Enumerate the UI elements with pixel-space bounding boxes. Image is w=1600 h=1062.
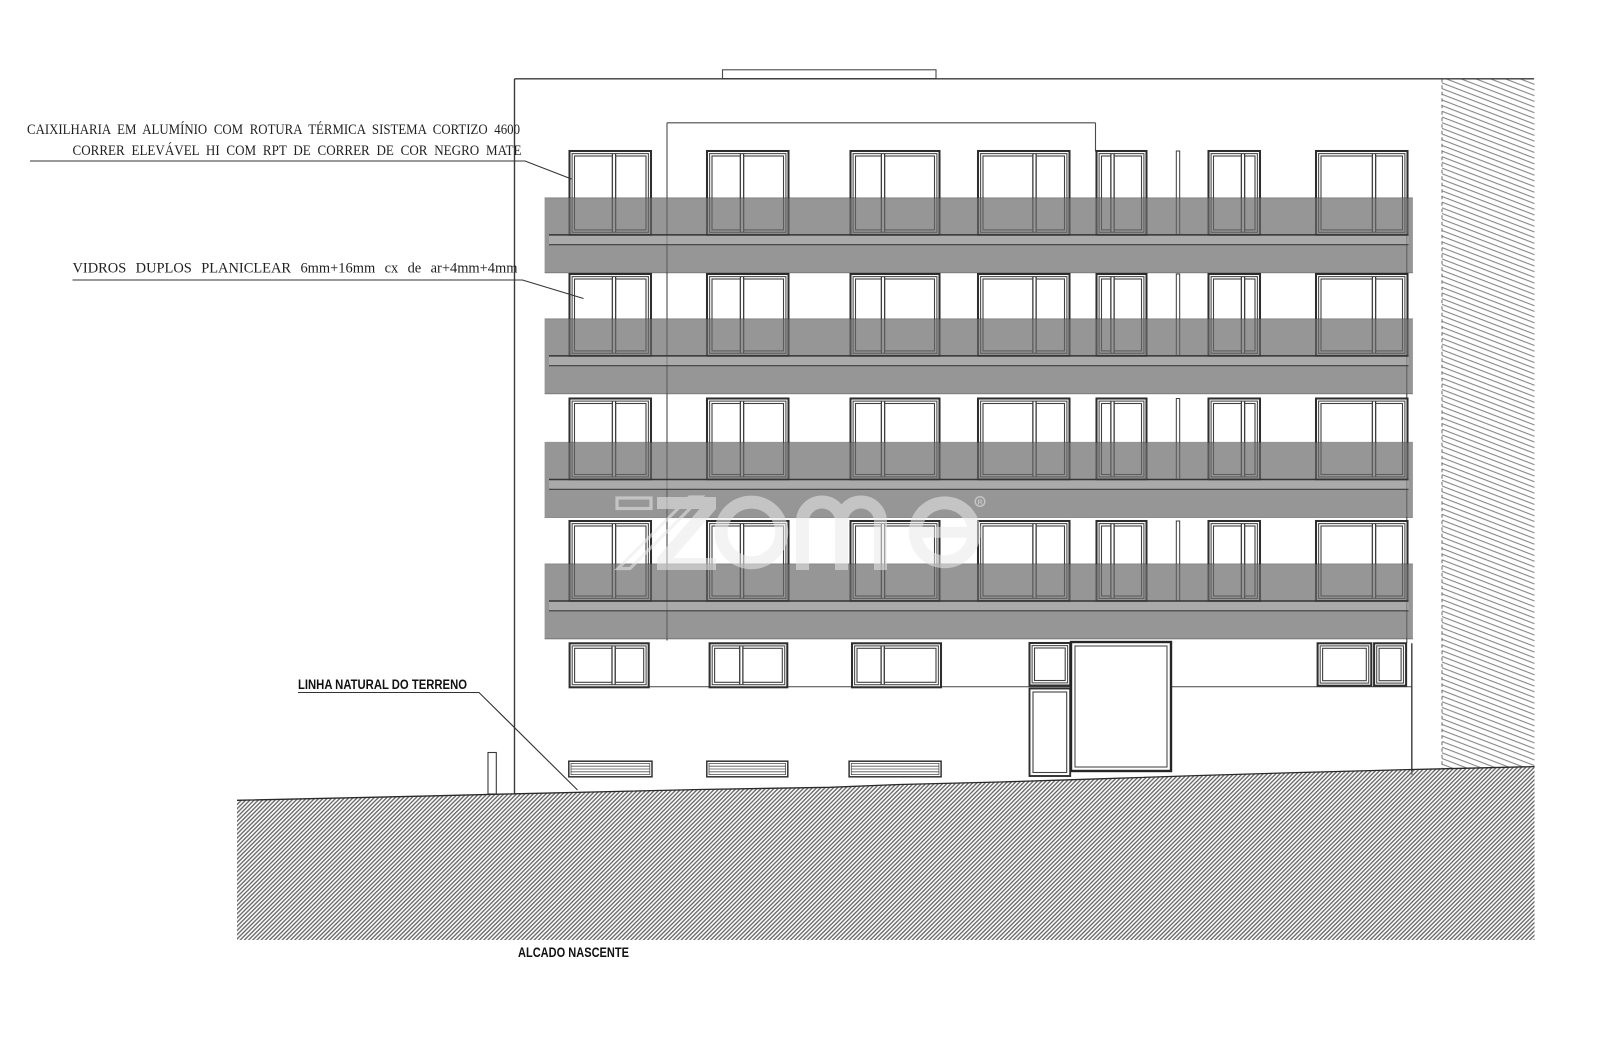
svg-text:R: R (977, 499, 982, 506)
svg-text:LINHA NATURAL DO TERRENO: LINHA NATURAL DO TERRENO (298, 677, 467, 692)
svg-text:CORRER ELEVÁVEL HI COM RPT DE: CORRER ELEVÁVEL HI COM RPT DE CORRER DE … (73, 142, 522, 159)
svg-text:CAIXILHARIA EM ALUMÍNIO COM RO: CAIXILHARIA EM ALUMÍNIO COM ROTURA TÉRMI… (27, 121, 520, 138)
svg-text:VIDROS DUPLOS PLANICLEAR 6mm+1: VIDROS DUPLOS PLANICLEAR 6mm+16mm cx de … (73, 260, 518, 276)
svg-text:ALCADO NASCENTE: ALCADO NASCENTE (518, 945, 629, 960)
